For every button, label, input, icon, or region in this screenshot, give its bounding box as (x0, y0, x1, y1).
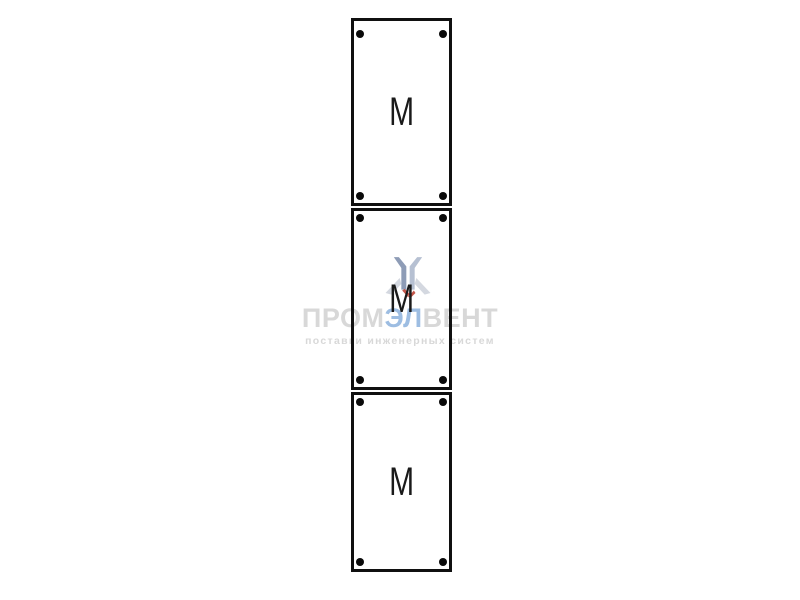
screw-icon (356, 376, 364, 384)
panel-module-3: M (351, 392, 452, 572)
module-label: M (389, 462, 414, 502)
screw-icon (356, 214, 364, 222)
product-diagram: ПРОМЭЛВЕНТ поставки инженерных систем M … (0, 0, 800, 600)
panel-module-2: M (351, 208, 452, 390)
screw-icon (439, 192, 447, 200)
screw-icon (356, 30, 364, 38)
screw-icon (439, 376, 447, 384)
screw-icon (439, 214, 447, 222)
modular-panel: M M M (351, 18, 452, 572)
screw-icon (439, 30, 447, 38)
screw-icon (439, 398, 447, 406)
screw-icon (439, 558, 447, 566)
panel-module-1: M (351, 18, 452, 206)
screw-icon (356, 398, 364, 406)
module-label: M (389, 92, 414, 132)
screw-icon (356, 192, 364, 200)
screw-icon (356, 558, 364, 566)
module-label: M (389, 279, 414, 319)
